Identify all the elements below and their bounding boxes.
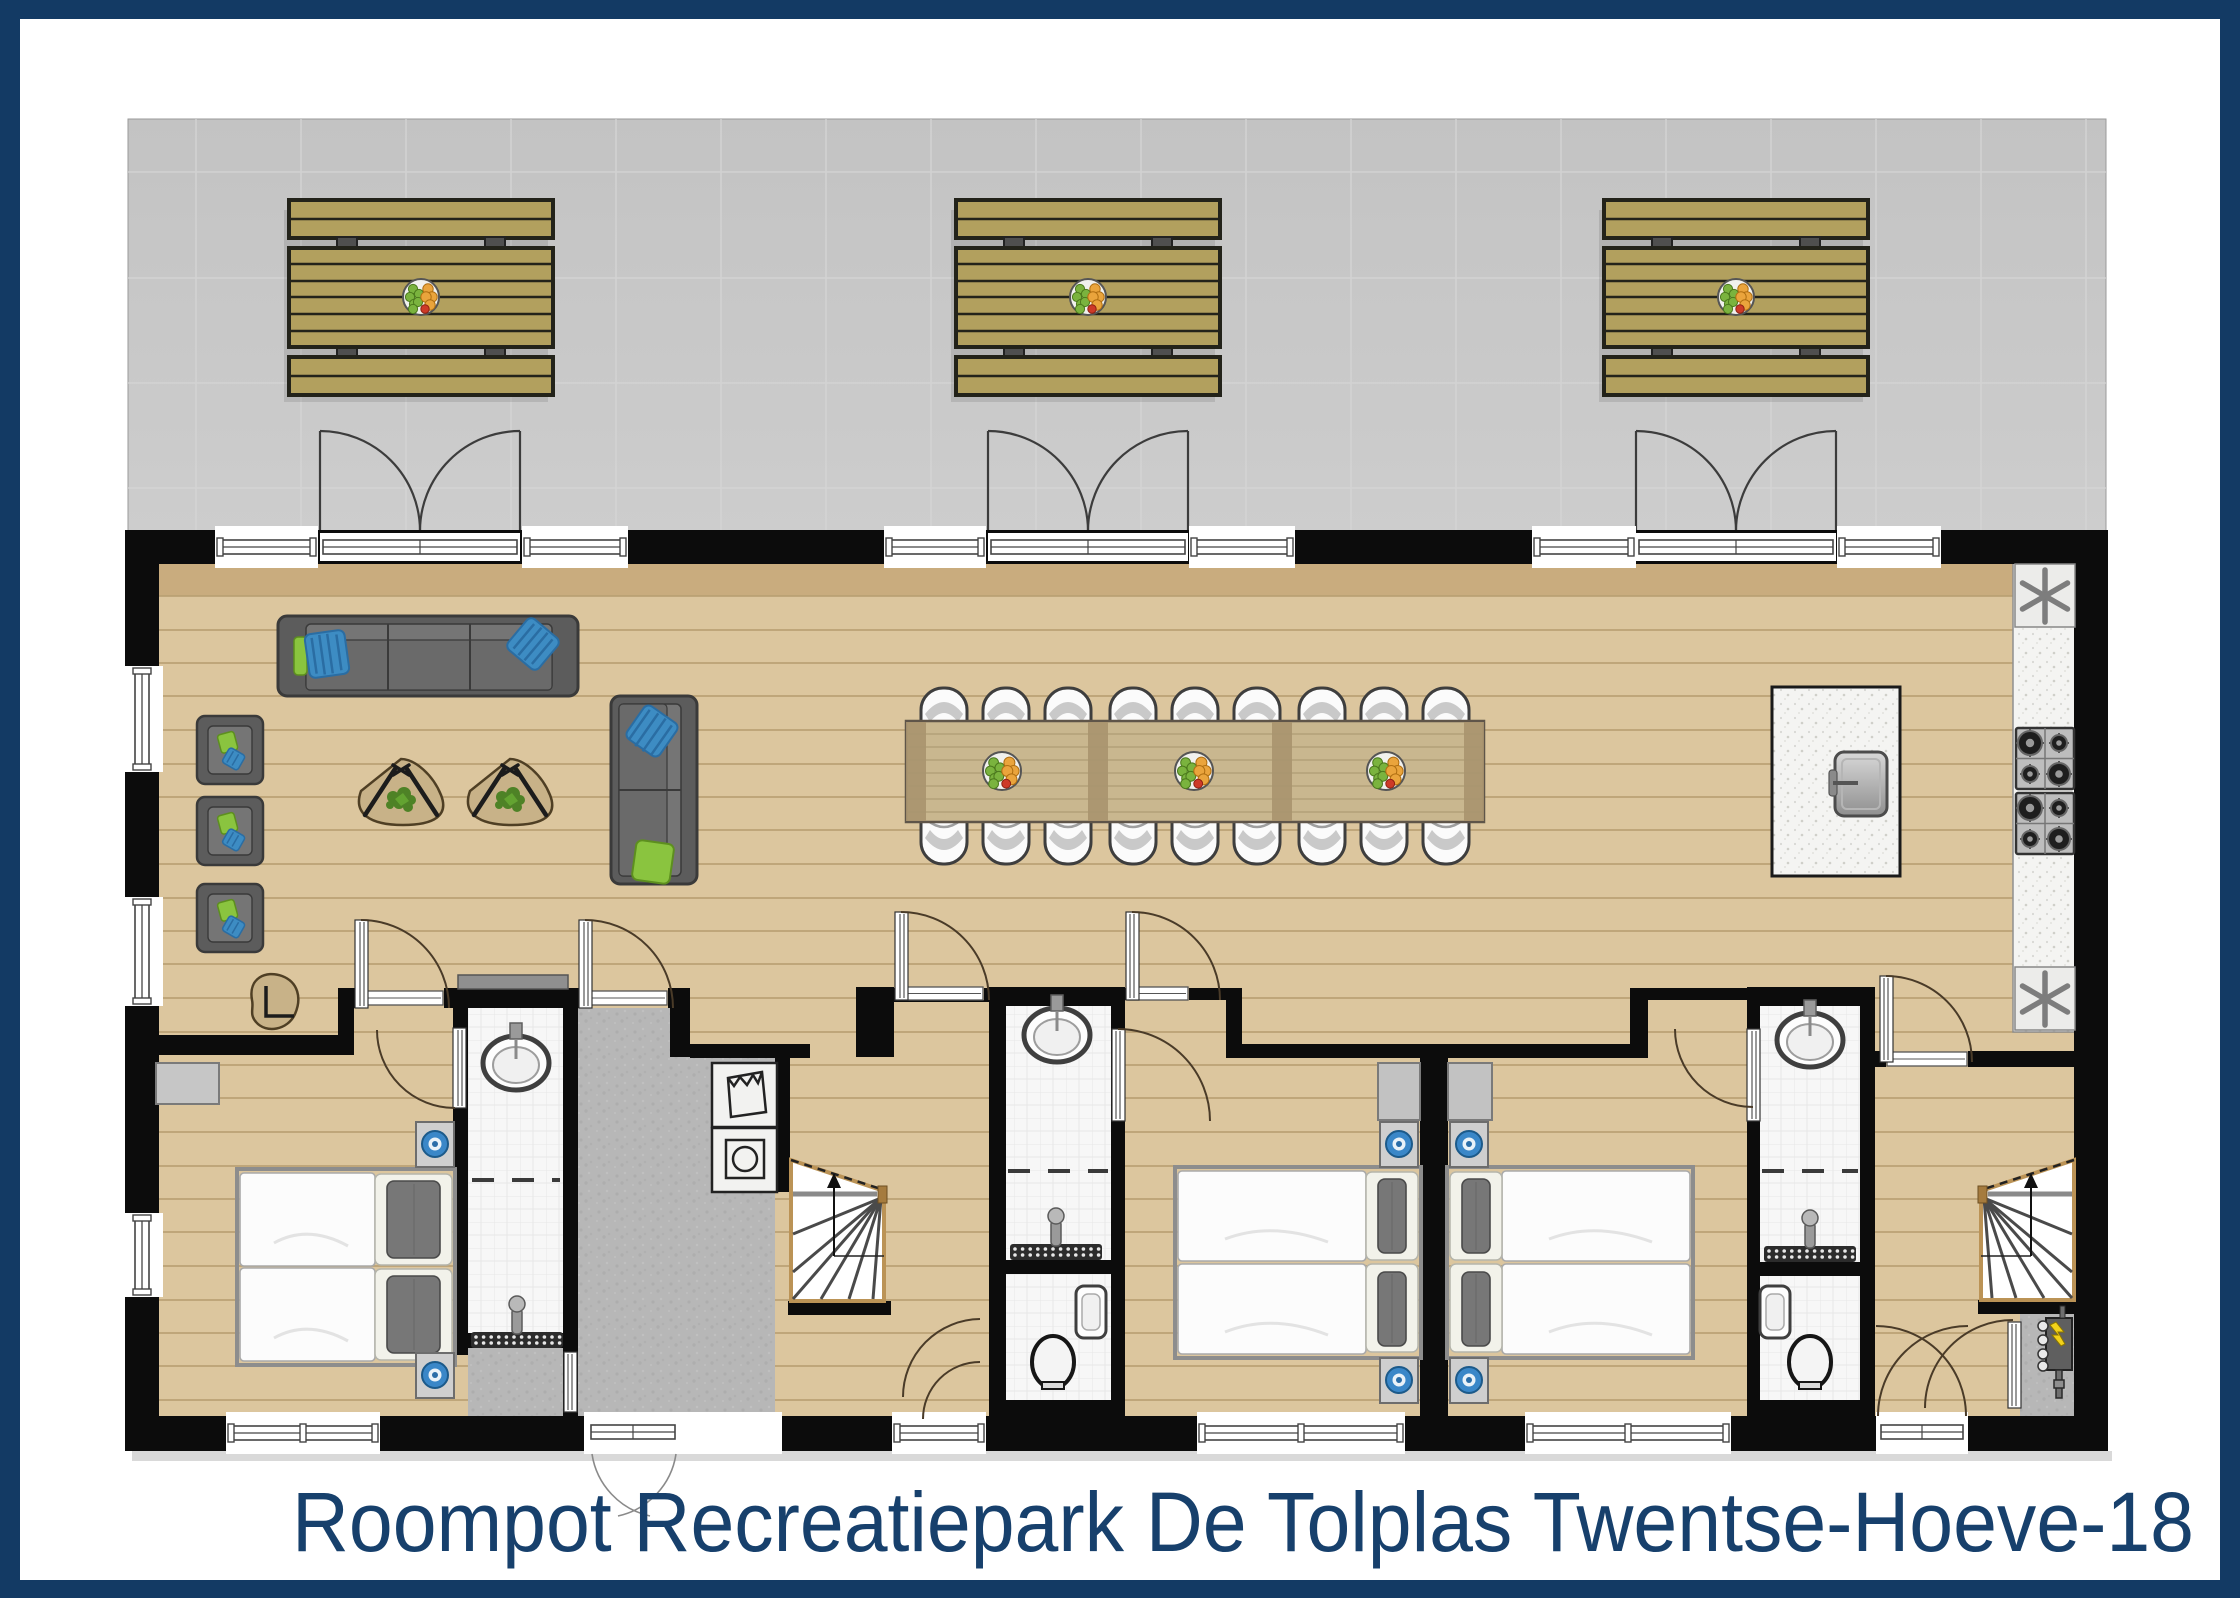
- svg-text:Roompot Recreatiepark De Tolpl: Roompot Recreatiepark De Tolplas Twentse…: [292, 1475, 2194, 1569]
